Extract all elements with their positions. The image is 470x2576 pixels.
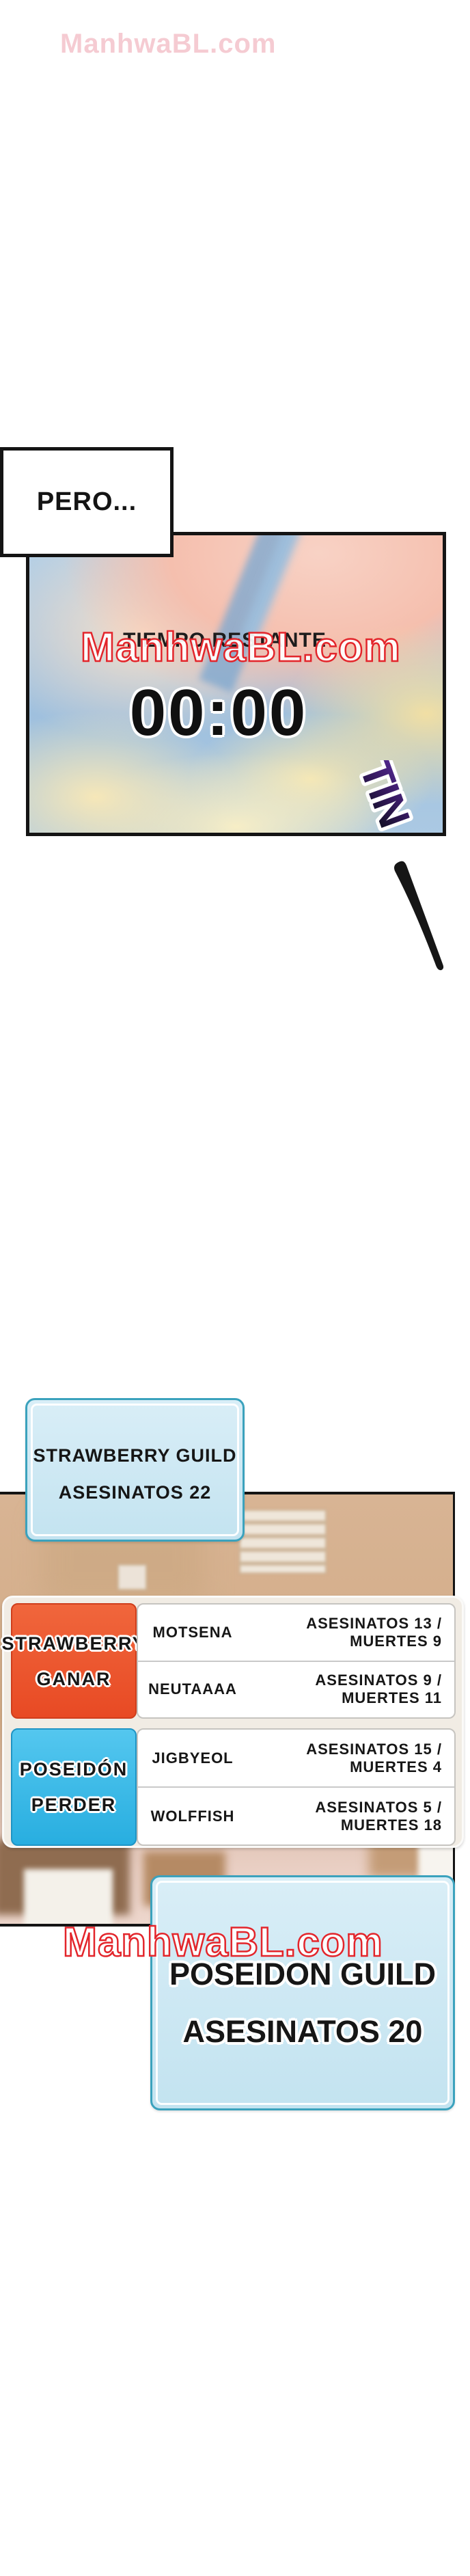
player-row: MOTSENA ASESINATOS 13 / MUERTES 9: [138, 1605, 454, 1661]
team-name: STRAWBERRY: [2, 1626, 146, 1661]
player-row: WOLFFISH ASESINATOS 5 / MUERTES 18: [138, 1786, 454, 1844]
speech-text: PERO...: [37, 487, 137, 517]
site-watermark-top: ManhwaBL.com: [60, 29, 276, 59]
banner-text: STRAWBERRY GUILD ASESINATOS 22: [27, 1437, 243, 1511]
player-stats: ASESINATOS 15 / MUERTES 4: [247, 1741, 454, 1776]
timer-value: 00:00: [72, 675, 365, 751]
blurred-building: [239, 1510, 327, 1574]
timer-label: TIEMPO RESTANTE: [81, 629, 368, 652]
scoreboard-card: STRAWBERRY GANAR MOTSENA ASESINATOS 13 /…: [2, 1596, 464, 1848]
player-rows-poseidon: JIGBYEOL ASESINATOS 15 / MUERTES 4 WOLFF…: [137, 1728, 456, 1846]
guild-banner-strawberry: STRAWBERRY GUILD ASESINATOS 22: [25, 1398, 245, 1542]
banner-text: POSEIDON GUILD ASESINATOS 20: [152, 1946, 453, 2061]
player-name: NEUTAAAA: [138, 1680, 247, 1698]
player-row: NEUTAAAA ASESINATOS 9 / MUERTES 11: [138, 1661, 454, 1718]
team-badge-poseidon: POSEIDÓN PERDER: [11, 1728, 137, 1846]
banner-line1: POSEIDON GUILD: [152, 1946, 453, 2003]
team-result: GANAR: [37, 1661, 111, 1697]
player-stats: ASESINATOS 9 / MUERTES 11: [247, 1672, 454, 1707]
comic-page: ManhwaBL.com TIEMPO RESTANTE 00:00 Manhw…: [0, 0, 470, 2576]
player-name: JIGBYEOL: [138, 1749, 247, 1767]
player-row: JIGBYEOL ASESINATOS 15 / MUERTES 4: [138, 1730, 454, 1786]
player-rows-strawberry: MOTSENA ASESINATOS 13 / MUERTES 9 NEUTAA…: [137, 1603, 456, 1719]
team-result: PERDER: [31, 1787, 117, 1823]
team-name: POSEIDÓN: [20, 1752, 128, 1787]
blurred-building: [24, 1869, 113, 1927]
player-name: WOLFFISH: [138, 1808, 247, 1825]
sfx-tin: TIN: [316, 760, 459, 883]
player-stats: ASESINATOS 13 / MUERTES 9: [247, 1615, 454, 1650]
blurred-building: [117, 1564, 147, 1590]
banner-line2: ASESINATOS 20: [152, 2003, 453, 2061]
banner-line2: ASESINATOS 22: [27, 1474, 243, 1511]
team-badge-strawberry: STRAWBERRY GANAR: [11, 1603, 137, 1719]
speech-bubble-pero: PERO...: [0, 447, 174, 557]
player-stats: ASESINATOS 5 / MUERTES 18: [247, 1799, 454, 1834]
sfx-tin-text: TIN: [350, 760, 419, 833]
banner-line1: STRAWBERRY GUILD: [27, 1437, 243, 1474]
player-name: MOTSENA: [138, 1624, 247, 1641]
guild-banner-poseidon: POSEIDON GUILD ASESINATOS 20: [150, 1875, 455, 2110]
